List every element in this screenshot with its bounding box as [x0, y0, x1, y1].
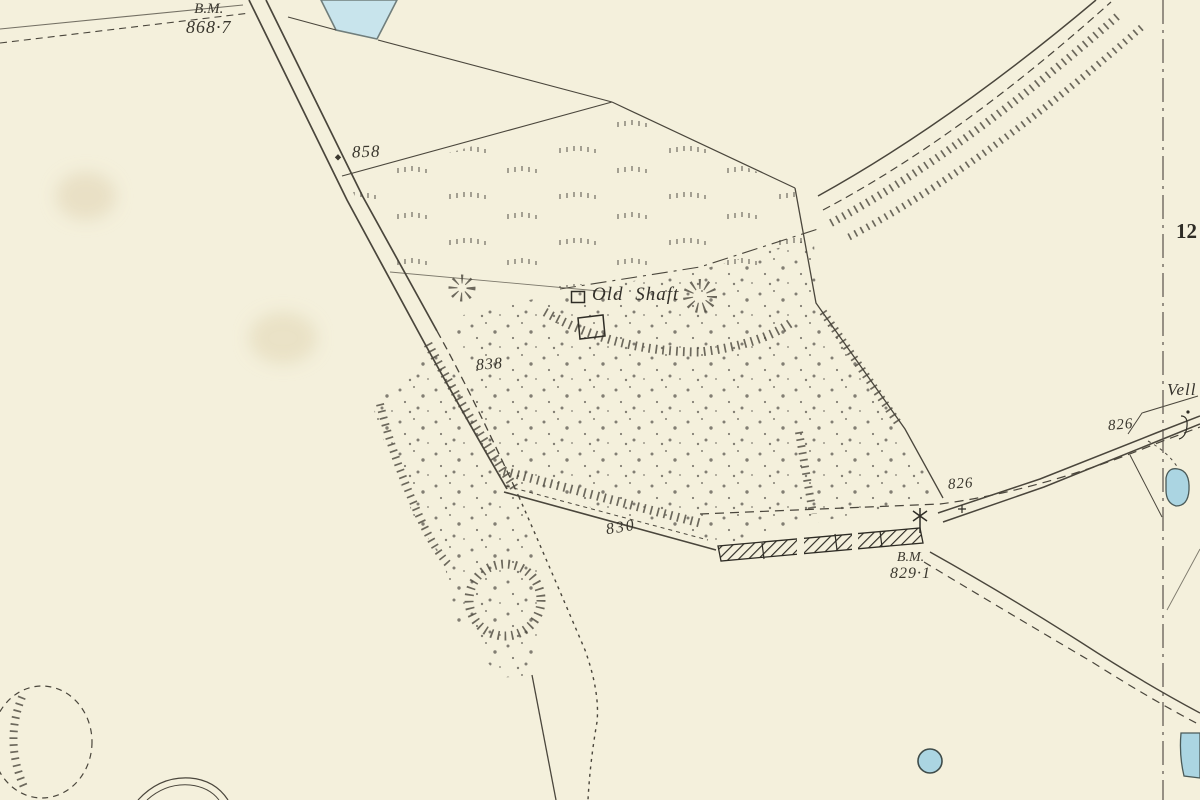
well-label-fragment: Vell — [1167, 381, 1197, 399]
benchmark-label-868: B.M. 868·7 — [186, 2, 232, 37]
benchmark-829-prefix: B.M. — [890, 551, 931, 566]
benchmark-868-value: 868·7 — [186, 18, 232, 37]
benchmark-829-value: 829·1 — [890, 566, 931, 583]
spot-height-826-east: 826 — [1107, 417, 1134, 435]
pond-bottom-right — [1180, 733, 1200, 778]
old-shaft-label: Old Shaft — [592, 285, 679, 305]
map-linework — [0, 0, 1200, 800]
benchmark-868-prefix: B.M. — [186, 2, 232, 18]
historic-map-canvas[interactable]: B.M. 868·7 858 Old Shaft 838 830 826 826… — [0, 0, 1200, 800]
wall-gap — [852, 531, 858, 552]
spot-height-858: 858 — [352, 143, 381, 162]
pond-small-round — [918, 749, 942, 773]
spot-height-826-west: 826 — [947, 476, 974, 493]
sheet-number-fragment: 12 — [1176, 220, 1197, 242]
spot-height-838: 838 — [475, 356, 503, 375]
wall-gap — [797, 534, 804, 556]
benchmark-label-829: B.M. 829·1 — [890, 551, 931, 582]
pond-right — [1166, 469, 1189, 506]
spring-dot-icon — [1186, 410, 1189, 413]
